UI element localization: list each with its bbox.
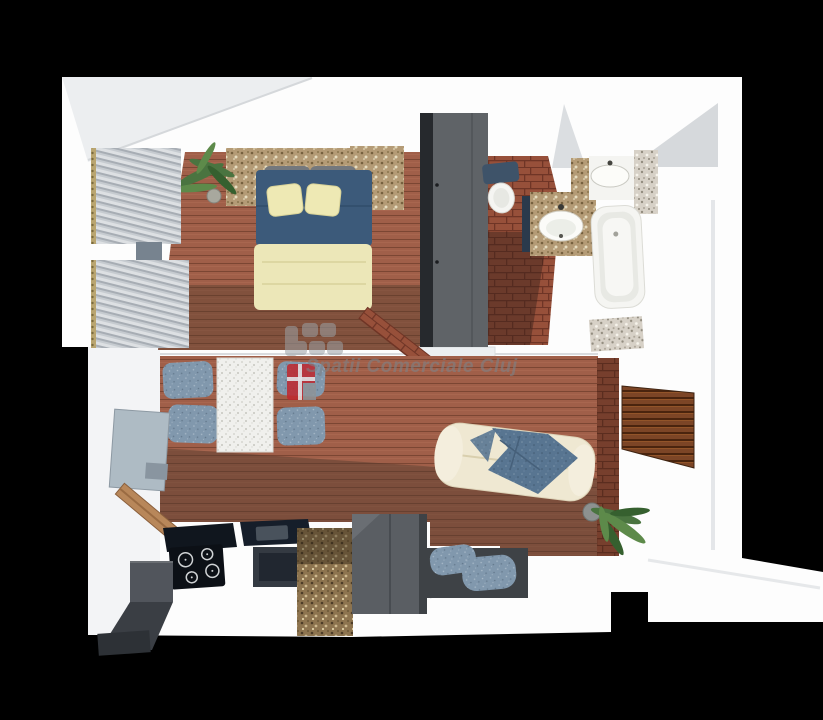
floor-plan-render: Spatii Comerciale Cluj bbox=[0, 0, 823, 720]
granite-column bbox=[297, 528, 353, 636]
tv-panel bbox=[109, 409, 171, 491]
floor-plan-canvas: Spatii Comerciale Cluj bbox=[0, 0, 823, 720]
pouf bbox=[461, 554, 518, 593]
bathtub bbox=[590, 205, 645, 309]
kitchen-sink bbox=[256, 525, 289, 541]
cooktop bbox=[169, 544, 226, 590]
curtain-bead-strip-upper bbox=[91, 148, 96, 244]
floor-cushions bbox=[426, 543, 528, 598]
window-blind-upper bbox=[91, 148, 181, 244]
curtain-bead-strip-lower bbox=[91, 260, 96, 348]
wardrobe-handle bbox=[435, 260, 439, 264]
stone-wall-block bbox=[634, 150, 658, 214]
window-blind-lower bbox=[91, 260, 189, 348]
cream-pillow-right bbox=[305, 183, 342, 216]
cream-pillow-left bbox=[266, 183, 303, 217]
dining-table bbox=[217, 358, 273, 452]
cream-blanket bbox=[254, 244, 372, 310]
dining-chair bbox=[162, 361, 214, 400]
watermark-text: Spatii Comerciale Cluj bbox=[306, 356, 518, 377]
wardrobe bbox=[413, 113, 495, 359]
wardrobe-handle bbox=[435, 183, 439, 187]
vanity-sink bbox=[522, 192, 596, 256]
dining-chair bbox=[276, 406, 325, 446]
fridge-cabinet bbox=[352, 514, 427, 614]
dining-chair bbox=[167, 404, 218, 444]
stone-half-wall bbox=[589, 316, 644, 352]
faucet-icon bbox=[608, 161, 613, 166]
faucet-icon bbox=[558, 204, 564, 210]
